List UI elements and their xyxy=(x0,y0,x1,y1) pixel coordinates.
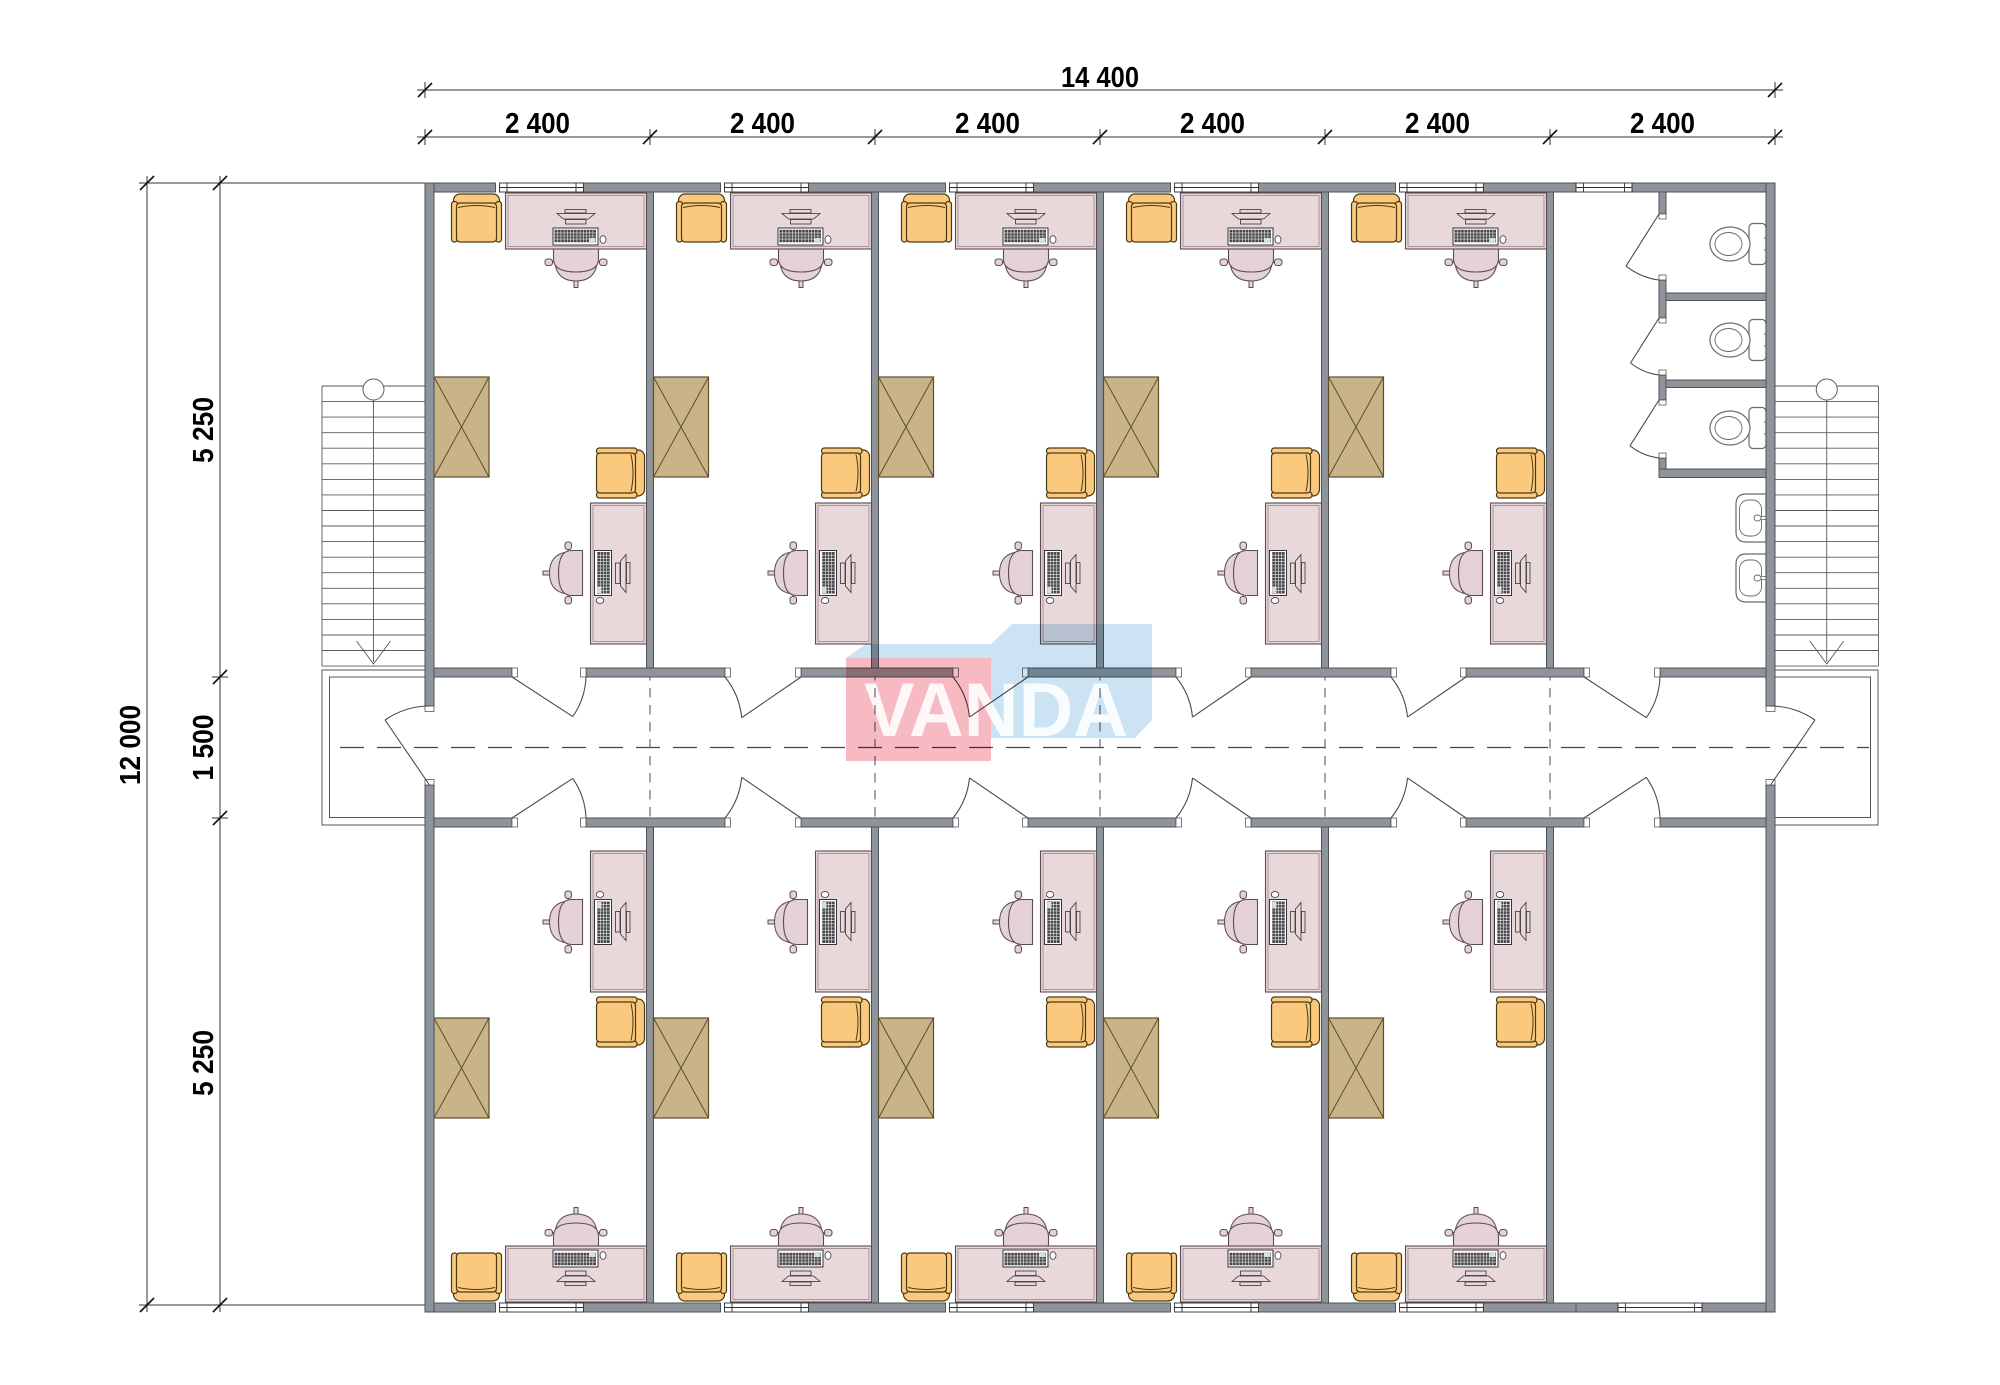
svg-text:2 400: 2 400 xyxy=(1630,108,1695,140)
svg-text:2 400: 2 400 xyxy=(955,108,1020,140)
svg-text:2 400: 2 400 xyxy=(1180,108,1245,140)
svg-text:12 000: 12 000 xyxy=(115,705,147,785)
svg-text:5 250: 5 250 xyxy=(188,1030,220,1096)
svg-text:2 400: 2 400 xyxy=(1405,108,1470,140)
svg-text:2 400: 2 400 xyxy=(730,108,795,140)
svg-text:14 400: 14 400 xyxy=(1061,62,1139,94)
svg-text:1 500: 1 500 xyxy=(188,715,220,781)
svg-text:2 400: 2 400 xyxy=(505,108,570,140)
svg-text:5 250: 5 250 xyxy=(188,397,220,463)
svg-text:VANDA: VANDA xyxy=(864,668,1128,753)
